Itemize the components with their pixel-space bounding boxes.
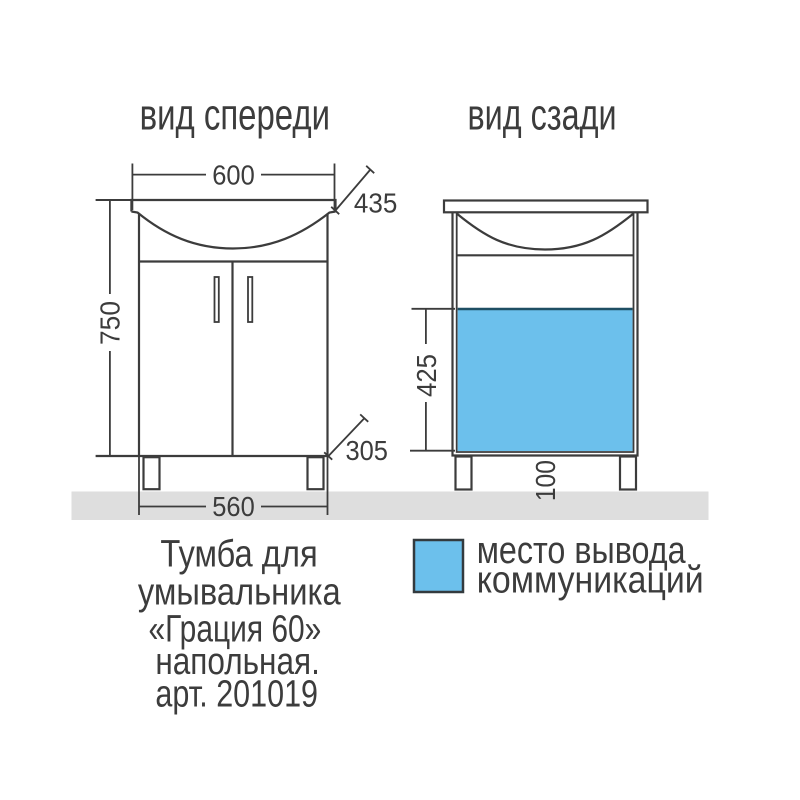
svg-text:435: 435 xyxy=(354,187,397,218)
svg-text:560: 560 xyxy=(212,491,254,522)
svg-text:вид сзади: вид сзади xyxy=(467,91,616,140)
svg-text:Тумба для: Тумба для xyxy=(160,532,317,575)
svg-text:600: 600 xyxy=(212,159,254,190)
svg-text:305: 305 xyxy=(345,435,387,466)
svg-text:умывальника: умывальника xyxy=(138,570,341,613)
svg-text:арт. 201019: арт. 201019 xyxy=(155,673,318,715)
svg-text:425: 425 xyxy=(411,354,442,397)
svg-text:вид спереди: вид спереди xyxy=(140,91,330,140)
svg-text:коммуникаций: коммуникаций xyxy=(477,558,704,601)
svg-text:750: 750 xyxy=(94,301,126,345)
svg-text:100: 100 xyxy=(529,460,561,501)
